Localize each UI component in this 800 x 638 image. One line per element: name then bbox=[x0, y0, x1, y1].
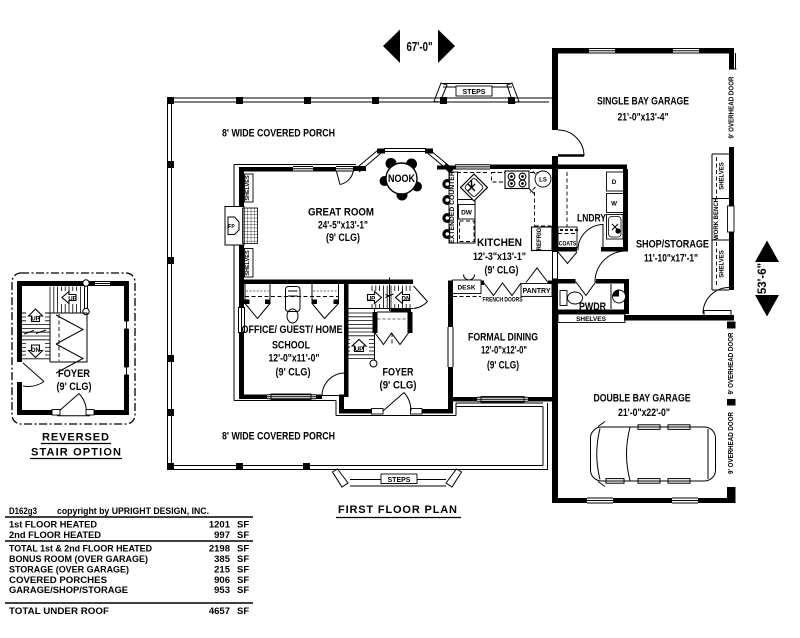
svg-text:(9' CLG): (9' CLG) bbox=[380, 380, 417, 392]
svg-text:953: 953 bbox=[214, 585, 230, 596]
svg-text:385: 385 bbox=[214, 554, 231, 565]
svg-text:EXTENDED COUNTER: EXTENDED COUNTER bbox=[449, 171, 456, 244]
svg-text:(9' CLG): (9' CLG) bbox=[487, 360, 519, 372]
svg-text:1201: 1201 bbox=[209, 520, 231, 531]
svg-text:12'-0"x12'-0": 12'-0"x12'-0" bbox=[481, 345, 527, 357]
svg-text:FORMAL DINING: FORMAL DINING bbox=[468, 332, 538, 344]
svg-text:TOTAL 1st & 2nd FLOOR HEATED: TOTAL 1st & 2nd FLOOR HEATED bbox=[9, 544, 152, 555]
svg-text:SINGLE BAY GARAGE: SINGLE BAY GARAGE bbox=[597, 96, 689, 108]
svg-text:9' OVERHEAD DOOR: 9' OVERHEAD DOOR bbox=[728, 412, 735, 474]
svg-text:(9' CLG): (9' CLG) bbox=[276, 367, 311, 379]
svg-text:21'-0"x13'-4": 21'-0"x13'-4" bbox=[618, 112, 669, 124]
svg-text:21'-0"x22'-0": 21'-0"x22'-0" bbox=[618, 407, 670, 419]
svg-text:STEPS: STEPS bbox=[388, 477, 411, 484]
svg-text:FIRST FLOOR PLAN: FIRST FLOOR PLAN bbox=[338, 504, 457, 516]
svg-text:W: W bbox=[611, 201, 617, 208]
svg-text:67'-0": 67'-0" bbox=[407, 40, 433, 54]
svg-text:SHELVES: SHELVES bbox=[720, 162, 726, 190]
svg-text:PANTRY: PANTRY bbox=[523, 288, 551, 295]
svg-text:STORAGE (OVER GARAGE): STORAGE (OVER GARAGE) bbox=[9, 565, 129, 576]
svg-text:D162g3: D162g3 bbox=[9, 506, 37, 517]
svg-text:1st FLOOR HEATED: 1st FLOOR HEATED bbox=[9, 520, 97, 531]
svg-text:215: 215 bbox=[214, 565, 231, 576]
svg-text:SF: SF bbox=[237, 544, 249, 555]
svg-text:12'-0"x11'-0": 12'-0"x11'-0" bbox=[269, 353, 320, 365]
svg-text:STAIR OPTION: STAIR OPTION bbox=[31, 447, 121, 459]
svg-text:copyright by UPRIGHT DESIGN, I: copyright by UPRIGHT DESIGN, INC. bbox=[57, 506, 209, 517]
svg-text:SHELVES: SHELVES bbox=[245, 250, 251, 276]
svg-text:REFRIG: REFRIG bbox=[537, 227, 543, 250]
svg-text:SF: SF bbox=[237, 530, 249, 541]
svg-text:SHELVES: SHELVES bbox=[720, 250, 726, 278]
svg-text:UP: UP bbox=[68, 295, 77, 302]
svg-text:LS: LS bbox=[539, 178, 547, 184]
svg-text:SF: SF bbox=[237, 565, 249, 576]
svg-text:8' WIDE COVERED PORCH: 8' WIDE COVERED PORCH bbox=[222, 128, 335, 140]
svg-text:4657: 4657 bbox=[209, 606, 230, 617]
svg-text:FP: FP bbox=[228, 224, 235, 230]
svg-text:SF: SF bbox=[237, 554, 249, 565]
svg-text:(9' CLG): (9' CLG) bbox=[57, 381, 92, 393]
svg-text:11'-10"x17'-1": 11'-10"x17'-1" bbox=[644, 253, 698, 265]
svg-text:OFFICE/ GUEST/ HOME: OFFICE/ GUEST/ HOME bbox=[242, 324, 343, 336]
svg-text:FRENCH DOORS: FRENCH DOORS bbox=[483, 297, 523, 304]
svg-text:9' OVERHEAD DOOR: 9' OVERHEAD DOOR bbox=[729, 77, 736, 139]
svg-text:DESK: DESK bbox=[457, 285, 475, 292]
svg-text:GREAT ROOM: GREAT ROOM bbox=[308, 207, 374, 219]
svg-text:2198: 2198 bbox=[209, 544, 230, 555]
svg-text:TOTAL UNDER ROOF: TOTAL UNDER ROOF bbox=[9, 606, 109, 617]
svg-text:24'-5"x13'-1": 24'-5"x13'-1" bbox=[318, 220, 368, 232]
svg-text:53'-6": 53'-6" bbox=[757, 263, 769, 294]
svg-text:D: D bbox=[612, 179, 617, 186]
svg-text:REVERSED: REVERSED bbox=[42, 432, 109, 444]
svg-text:(9' CLG): (9' CLG) bbox=[326, 232, 360, 244]
svg-text:KITCHEN: KITCHEN bbox=[477, 237, 522, 249]
svg-text:FOYER: FOYER bbox=[58, 368, 90, 380]
svg-text:STEPS: STEPS bbox=[463, 89, 486, 96]
svg-text:COATS: COATS bbox=[559, 241, 577, 248]
svg-text:DOUBLE BAY GARAGE: DOUBLE BAY GARAGE bbox=[594, 393, 691, 405]
svg-text:SHOP/STORAGE: SHOP/STORAGE bbox=[636, 239, 709, 251]
svg-text:9' OVERHEAD DOOR: 9' OVERHEAD DOOR bbox=[728, 333, 735, 395]
svg-text:SF: SF bbox=[237, 606, 249, 617]
svg-text:DN: DN bbox=[402, 295, 411, 302]
svg-text:UP: UP bbox=[31, 315, 40, 322]
svg-text:8' WIDE COVERED PORCH: 8' WIDE COVERED PORCH bbox=[222, 431, 335, 443]
svg-text:12'-3"x13'-1": 12'-3"x13'-1" bbox=[473, 251, 526, 263]
svg-text:BONUS ROOM (OVER GARAGE): BONUS ROOM (OVER GARAGE) bbox=[9, 554, 148, 565]
svg-text:NOOK: NOOK bbox=[388, 173, 415, 185]
svg-text:SHELVES: SHELVES bbox=[245, 175, 251, 201]
svg-text:DN: DN bbox=[31, 347, 40, 354]
svg-text:FOYER: FOYER bbox=[383, 367, 414, 379]
svg-text:LNDRY: LNDRY bbox=[577, 213, 607, 225]
svg-text:GARAGE/SHOP/STORAGE: GARAGE/SHOP/STORAGE bbox=[9, 585, 128, 596]
svg-text:SCHOOL: SCHOOL bbox=[272, 340, 310, 352]
svg-text:PWDR: PWDR bbox=[579, 301, 606, 313]
svg-text:SF: SF bbox=[237, 520, 249, 531]
svg-text:UP: UP bbox=[355, 346, 364, 353]
svg-text:997: 997 bbox=[214, 530, 230, 541]
svg-text:(9' CLG): (9' CLG) bbox=[485, 265, 519, 277]
svg-text:SHELVES: SHELVES bbox=[576, 316, 607, 323]
svg-text:UP: UP bbox=[367, 295, 376, 302]
svg-text:WORK BENCH: WORK BENCH bbox=[714, 198, 720, 240]
svg-text:DW: DW bbox=[461, 210, 473, 217]
svg-text:2nd FLOOR HEATED: 2nd FLOOR HEATED bbox=[9, 530, 101, 541]
svg-text:SF: SF bbox=[237, 585, 249, 596]
